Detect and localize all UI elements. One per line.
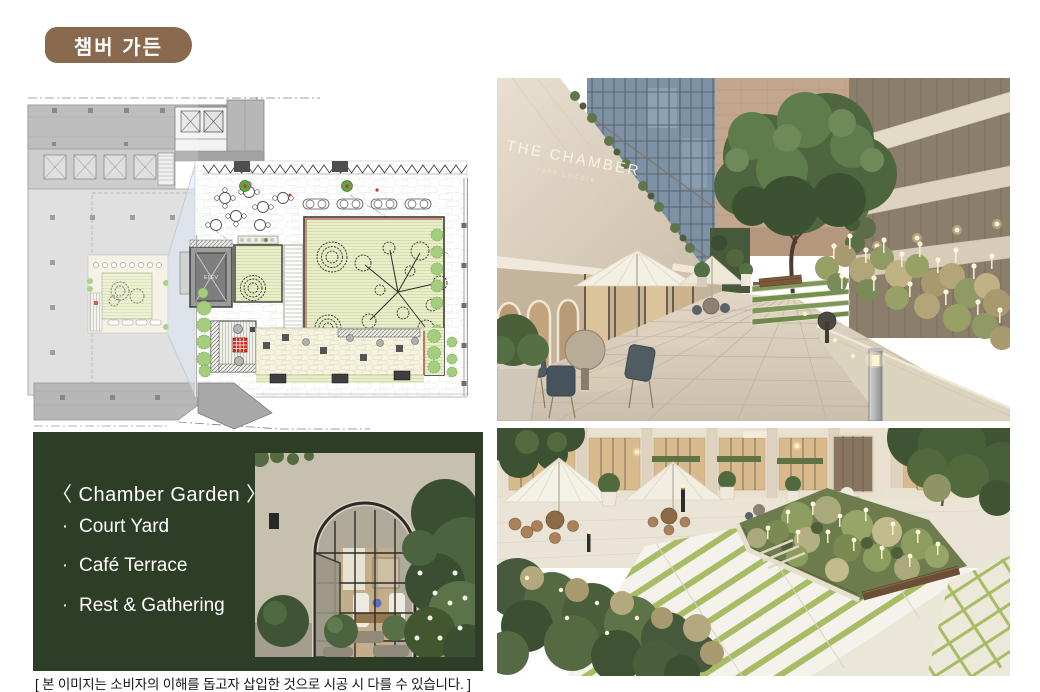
- title-badge: 챔버 가든: [45, 27, 192, 63]
- panel-item-cafe-terrace: · Café Terrace: [59, 555, 187, 577]
- slide-canvas: 챔버 가든: [0, 0, 1040, 692]
- terrace-rendering: [497, 428, 1010, 676]
- info-panel: 〈 Chamber Garden 〉 · Court Yard · Café T…: [33, 432, 483, 671]
- deck-plan: [211, 321, 256, 372]
- title-badge-label: 챔버 가든: [74, 31, 163, 60]
- bullet-dot: ·: [59, 555, 71, 577]
- floor-plan-drawing: ELEV: [20, 95, 470, 432]
- panel-item-court-yard: · Court Yard: [59, 516, 169, 538]
- small-lawn-plan: [234, 236, 282, 302]
- facade-sign-glow-2: [743, 431, 767, 438]
- elevator-label: ELEV: [204, 275, 218, 281]
- panel-item-label: Rest & Gathering: [79, 595, 225, 617]
- panel-item-label: Café Terrace: [79, 555, 187, 577]
- right-shrubs: [402, 479, 475, 657]
- stairs-plan: [284, 245, 303, 333]
- wall-lamp: [269, 513, 279, 529]
- arch-doorway-svg: [255, 453, 475, 657]
- terrace-rendering-svg: [497, 428, 1010, 676]
- panel-title: 〈 Chamber Garden 〉: [52, 478, 267, 507]
- big-planter-pot: [497, 366, 539, 421]
- terrace-plan: [256, 328, 444, 383]
- bullet-dot: ·: [59, 516, 71, 538]
- garden-plan-detail: ELEV: [180, 161, 468, 429]
- courtyard-rendering-svg: THE CHAMBER PARK LOGGIA: [497, 78, 1010, 421]
- courtyard-rendering: THE CHAMBER PARK LOGGIA: [497, 78, 1010, 421]
- panel-item-rest-gathering: · Rest & Gathering: [59, 595, 225, 617]
- panel-item-label: Court Yard: [79, 516, 169, 538]
- bullet-dot: ·: [59, 595, 71, 617]
- disclaimer-text: [ 본 이미지는 소비자의 이해를 돕고자 삽입한 것으로 시공 시 다를 수 …: [35, 673, 471, 692]
- floor-plan: ELEV: [20, 95, 470, 432]
- arch-doorway-photo: [255, 453, 475, 657]
